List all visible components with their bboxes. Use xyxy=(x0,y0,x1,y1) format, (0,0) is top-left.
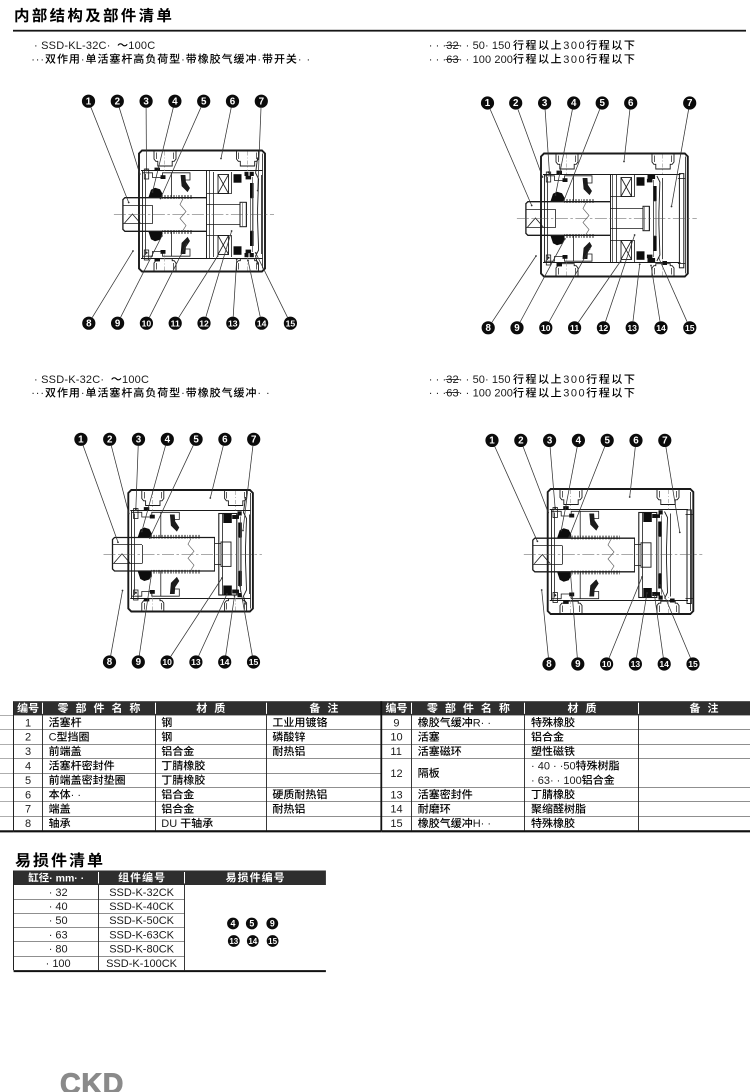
svg-text:· 80: · 80 xyxy=(49,944,68,956)
svg-text:7: 7 xyxy=(662,436,668,447)
svg-text:15: 15 xyxy=(286,318,296,328)
svg-text:100C: 100C xyxy=(128,40,155,52)
svg-text:·: · xyxy=(257,54,262,66)
svg-text:6: 6 xyxy=(633,436,639,447)
svg-text:9: 9 xyxy=(575,659,581,670)
svg-text:5: 5 xyxy=(604,436,610,447)
svg-text:13: 13 xyxy=(390,789,402,801)
svg-text:· 50: · 50 xyxy=(49,915,68,927)
svg-text:· · ·32· · 50· 150: · · ·32· · 50· 150 xyxy=(429,374,511,386)
svg-text:·: · xyxy=(81,54,86,66)
svg-text:8: 8 xyxy=(485,323,491,334)
svg-text:SSD-K-63CK: SSD-K-63CK xyxy=(109,929,174,941)
svg-text:9: 9 xyxy=(270,918,275,928)
svg-text:CKD: CKD xyxy=(60,1069,124,1092)
svg-text:8: 8 xyxy=(546,659,552,670)
svg-text:5: 5 xyxy=(599,98,605,109)
svg-text:10: 10 xyxy=(162,657,172,667)
svg-text:SSD-K-100CK: SSD-K-100CK xyxy=(106,958,178,970)
svg-text:4: 4 xyxy=(172,96,178,107)
svg-text:4: 4 xyxy=(25,761,31,773)
svg-text:·: · xyxy=(181,54,186,66)
svg-text:3: 3 xyxy=(542,98,548,109)
svg-text:·: · xyxy=(181,388,186,400)
svg-text:9: 9 xyxy=(115,318,121,329)
svg-text:12: 12 xyxy=(199,318,209,328)
svg-text:10: 10 xyxy=(142,318,152,328)
svg-text:4: 4 xyxy=(231,918,236,928)
svg-text:7: 7 xyxy=(25,804,31,816)
svg-text:2: 2 xyxy=(107,434,113,445)
svg-text:· 40: · 40 xyxy=(49,901,68,913)
svg-text:·: · xyxy=(81,388,86,400)
svg-text:300: 300 xyxy=(563,388,586,400)
svg-text:···: ··· xyxy=(31,54,45,66)
svg-text:3: 3 xyxy=(25,746,31,758)
svg-text:9: 9 xyxy=(393,717,399,729)
svg-text:2: 2 xyxy=(518,436,524,447)
svg-text:12: 12 xyxy=(390,768,402,780)
svg-text:100C: 100C xyxy=(122,374,149,386)
svg-text:10: 10 xyxy=(602,659,612,669)
svg-text:13: 13 xyxy=(191,657,201,667)
svg-text:· 63· · 100: · 63· · 100 xyxy=(531,775,582,787)
svg-text:14: 14 xyxy=(220,657,230,667)
svg-text:14: 14 xyxy=(390,804,402,816)
svg-text:11: 11 xyxy=(570,323,579,333)
svg-text:· SSD-K-32C·: · SSD-K-32C· xyxy=(34,374,104,386)
svg-text:15: 15 xyxy=(249,657,259,667)
svg-text:· mm· ·: · mm· · xyxy=(49,872,84,884)
svg-text:3: 3 xyxy=(143,96,149,107)
svg-text:8: 8 xyxy=(107,657,113,668)
svg-text:11: 11 xyxy=(390,746,401,758)
svg-text:12: 12 xyxy=(599,323,609,333)
svg-text:4: 4 xyxy=(165,434,171,445)
svg-text:H· ·: H· · xyxy=(473,818,491,830)
svg-text:13: 13 xyxy=(229,937,238,946)
svg-text:5: 5 xyxy=(193,434,199,445)
svg-text:· · ·63· · 100 200: · · ·63· · 100 200 xyxy=(429,388,513,400)
svg-text:1: 1 xyxy=(78,434,84,445)
svg-text:9: 9 xyxy=(136,657,142,668)
svg-text:15: 15 xyxy=(685,323,695,333)
svg-text:· · ·63· · 100 200: · · ·63· · 100 200 xyxy=(429,54,513,66)
svg-text:13: 13 xyxy=(228,318,238,328)
svg-text:2: 2 xyxy=(513,98,519,109)
svg-text:1: 1 xyxy=(25,717,31,729)
svg-text:5: 5 xyxy=(249,918,254,928)
svg-text:2: 2 xyxy=(25,732,31,744)
svg-text:· ·: · · xyxy=(257,388,270,400)
svg-text:6: 6 xyxy=(25,789,31,801)
svg-text:13: 13 xyxy=(627,323,637,333)
svg-text:8: 8 xyxy=(25,818,31,830)
svg-text:6: 6 xyxy=(222,434,228,445)
svg-text:· ·: · · xyxy=(298,54,311,66)
svg-text:· · ·32· · 50· 150: · · ·32· · 50· 150 xyxy=(429,40,511,52)
svg-text:14: 14 xyxy=(248,937,257,946)
svg-text:· SSD-KL-32C·: · SSD-KL-32C· xyxy=(34,40,111,52)
svg-text:· 63: · 63 xyxy=(49,929,68,941)
svg-text:7: 7 xyxy=(251,434,257,445)
svg-text:SSD-K-40CK: SSD-K-40CK xyxy=(109,901,174,913)
svg-text:300: 300 xyxy=(563,374,586,386)
svg-text:C: C xyxy=(49,732,57,744)
svg-text:2: 2 xyxy=(115,96,121,107)
svg-text:···: ··· xyxy=(31,388,45,400)
svg-text:15: 15 xyxy=(268,937,277,946)
svg-text:1: 1 xyxy=(489,436,495,447)
svg-text:5: 5 xyxy=(25,775,31,787)
svg-text:7: 7 xyxy=(687,98,693,109)
svg-text:10: 10 xyxy=(390,732,402,744)
svg-text:10: 10 xyxy=(541,323,551,333)
svg-text:13: 13 xyxy=(631,659,641,669)
svg-text:SSD-K-80CK: SSD-K-80CK xyxy=(109,944,174,956)
svg-text:6: 6 xyxy=(230,96,236,107)
svg-text:SSD-K-50CK: SSD-K-50CK xyxy=(109,915,174,927)
svg-text:1: 1 xyxy=(86,96,92,107)
svg-text:· 100: · 100 xyxy=(46,958,71,970)
svg-text:1: 1 xyxy=(485,98,491,109)
svg-text:6: 6 xyxy=(628,98,634,109)
svg-text:3: 3 xyxy=(547,436,553,447)
svg-text:3: 3 xyxy=(136,434,142,445)
svg-text:7: 7 xyxy=(259,96,265,107)
svg-text:4: 4 xyxy=(571,98,577,109)
svg-text:R· ·: R· · xyxy=(473,717,491,729)
svg-text:15: 15 xyxy=(688,659,698,669)
svg-text:14: 14 xyxy=(257,318,267,328)
svg-text:· 40 · ·50: · 40 · ·50 xyxy=(531,761,576,773)
svg-text:· 32: · 32 xyxy=(49,887,68,899)
svg-text:5: 5 xyxy=(201,96,207,107)
svg-text:300: 300 xyxy=(563,40,586,52)
svg-text:14: 14 xyxy=(656,323,666,333)
svg-text:4: 4 xyxy=(576,436,582,447)
svg-text:9: 9 xyxy=(514,323,520,334)
svg-text:15: 15 xyxy=(390,818,402,830)
svg-text:11: 11 xyxy=(171,318,180,328)
svg-text:14: 14 xyxy=(659,659,669,669)
svg-text:DU: DU xyxy=(161,818,177,830)
svg-text:300: 300 xyxy=(563,54,586,66)
svg-text:· ·: · · xyxy=(71,789,81,801)
svg-text:8: 8 xyxy=(86,318,92,329)
svg-text:SSD-K-32CK: SSD-K-32CK xyxy=(109,887,174,899)
